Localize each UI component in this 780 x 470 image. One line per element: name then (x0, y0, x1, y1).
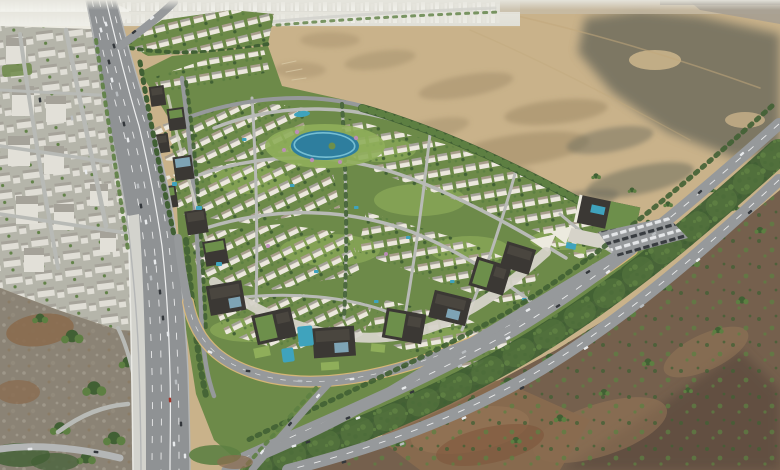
tower (44, 146, 64, 174)
car (159, 289, 162, 294)
retail-building (312, 326, 356, 359)
office-building (202, 238, 229, 267)
car (173, 442, 176, 447)
car (28, 448, 33, 451)
aerial-render-canvas: Master-planned villa community (0, 0, 780, 470)
car (184, 454, 187, 459)
car (162, 316, 165, 321)
car (167, 332, 170, 337)
office-building (184, 208, 208, 235)
office-building (149, 85, 167, 107)
office-building (167, 107, 187, 131)
car (175, 380, 178, 385)
lagoon-island (329, 143, 336, 150)
aerial-render-image: Master-planned villa community (0, 0, 780, 470)
tower (100, 232, 116, 252)
office-building (172, 155, 194, 181)
car (298, 380, 303, 383)
tower (24, 248, 44, 272)
car (169, 398, 172, 403)
atmosphere-haze (0, 0, 780, 10)
retail-building (206, 280, 247, 316)
tower (46, 96, 66, 122)
car (180, 422, 183, 427)
